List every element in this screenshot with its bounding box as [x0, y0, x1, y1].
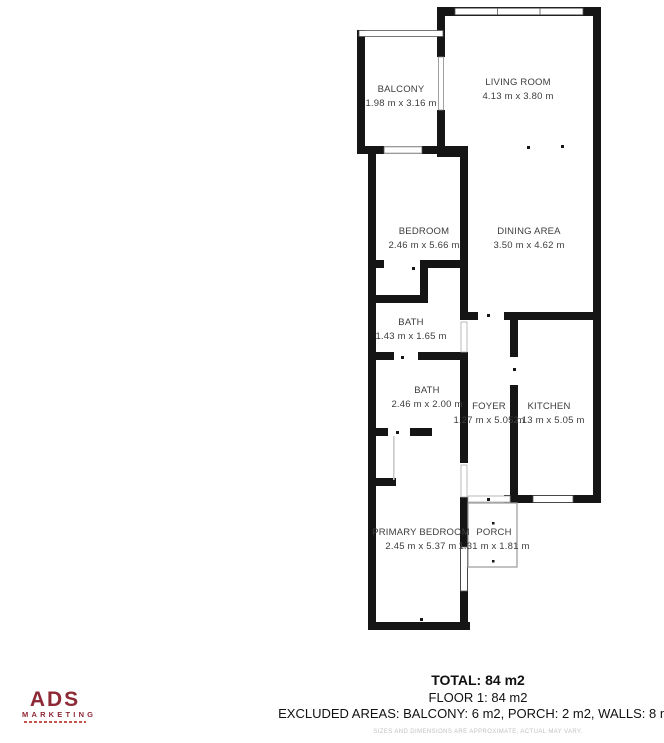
wall-segment: [504, 312, 601, 320]
wall-segment: [593, 7, 601, 503]
disclaimer-text: SIZES AND DIMENSIONS ARE APPROXIMATE, AC…: [373, 729, 582, 735]
door-opening: [461, 465, 467, 497]
balcony-window: [359, 31, 443, 37]
tick: [420, 618, 423, 621]
tick: [396, 431, 399, 434]
wall-segment: [368, 428, 388, 436]
wall-segment: [368, 622, 470, 630]
tick: [412, 267, 415, 270]
room-label-balcony: BALCONY 1.98 m x 3.16 m: [365, 83, 436, 111]
logo-name: ADS: [20, 690, 90, 710]
tick: [492, 560, 495, 563]
door-opening: [461, 322, 467, 352]
summary-excluded: EXCLUDED AREAS: BALCONY: 6 m2, PORCH: 2 …: [278, 706, 664, 721]
room-dims: 1.43 m x 1.65 m: [375, 330, 446, 344]
room-label-bedroom: BEDROOM 2.46 m x 5.66 m: [388, 225, 459, 253]
summary-total: TOTAL: 84 m2: [431, 672, 525, 688]
wall-segment: [368, 260, 384, 268]
floor-plan-page: { "floor_plan": { "rooms": [ { "name": "…: [0, 0, 664, 743]
room-name: PRIMARY BEDROOM: [372, 526, 470, 540]
wall-segment: [460, 150, 468, 320]
tick: [487, 314, 490, 317]
wall-segment: [368, 295, 428, 303]
room-label-bath-small: BATH 1.43 m x 1.65 m: [375, 316, 446, 344]
wall-segment: [410, 428, 432, 436]
room-name: PORCH: [458, 526, 529, 540]
room-label-kitchen: KITCHEN 2.13 m x 5.05 m: [513, 400, 584, 428]
living-room-window: [455, 8, 583, 15]
room-name: KITCHEN: [513, 400, 584, 414]
tick: [401, 356, 404, 359]
room-label-dining-area: DINING AREA 3.50 m x 4.62 m: [493, 225, 564, 253]
tick: [561, 145, 564, 148]
logo-tagline-bar: [24, 721, 86, 723]
wall-segment: [460, 312, 478, 320]
room-label-porch: PORCH 1.31 m x 1.81 m: [458, 526, 529, 554]
room-label-primary-bedroom: PRIMARY BEDROOM 2.45 m x 5.37 m: [372, 526, 470, 554]
room-dims: 1.31 m x 1.81 m: [458, 540, 529, 554]
room-name: BEDROOM: [388, 225, 459, 239]
wall-segment: [368, 478, 396, 486]
room-dims: 4.13 m x 3.80 m: [482, 90, 553, 104]
room-name: BATH: [375, 316, 446, 330]
closet-lines: [393, 436, 395, 480]
wall-segment: [510, 320, 518, 357]
tick: [527, 146, 530, 149]
wall-segment: [357, 30, 365, 153]
tick: [487, 498, 490, 501]
wall-segment: [368, 352, 394, 360]
room-name: BATH: [391, 384, 462, 398]
wall-segment: [368, 146, 376, 630]
ads-marketing-logo: ADS MARKETING: [20, 690, 90, 723]
tick: [513, 368, 516, 371]
balcony-door: [439, 57, 444, 110]
room-dims: 2.45 m x 5.37 m: [372, 540, 470, 554]
logo-subtitle: MARKETING: [22, 710, 90, 719]
tick: [596, 240, 599, 243]
bedroom-window: [384, 147, 422, 153]
floor-plan-svg: [0, 0, 664, 743]
summary-floor: FLOOR 1: 84 m2: [429, 690, 528, 705]
room-name: DINING AREA: [493, 225, 564, 239]
room-dims: 2.46 m x 5.66 m: [388, 239, 459, 253]
kitchen-window: [533, 496, 573, 503]
room-label-living-room: LIVING ROOM 4.13 m x 3.80 m: [482, 76, 553, 104]
room-dims: 3.50 m x 4.62 m: [493, 239, 564, 253]
room-dims: 1.98 m x 3.16 m: [365, 97, 436, 111]
tick: [492, 522, 495, 525]
room-label-bath-large: BATH 2.46 m x 2.00 m: [391, 384, 462, 412]
room-dims: 2.46 m x 2.00 m: [391, 398, 462, 412]
room-name: BALCONY: [365, 83, 436, 97]
room-name: LIVING ROOM: [482, 76, 553, 90]
closet-line: [393, 436, 395, 480]
room-dims: 2.13 m x 5.05 m: [513, 414, 584, 428]
